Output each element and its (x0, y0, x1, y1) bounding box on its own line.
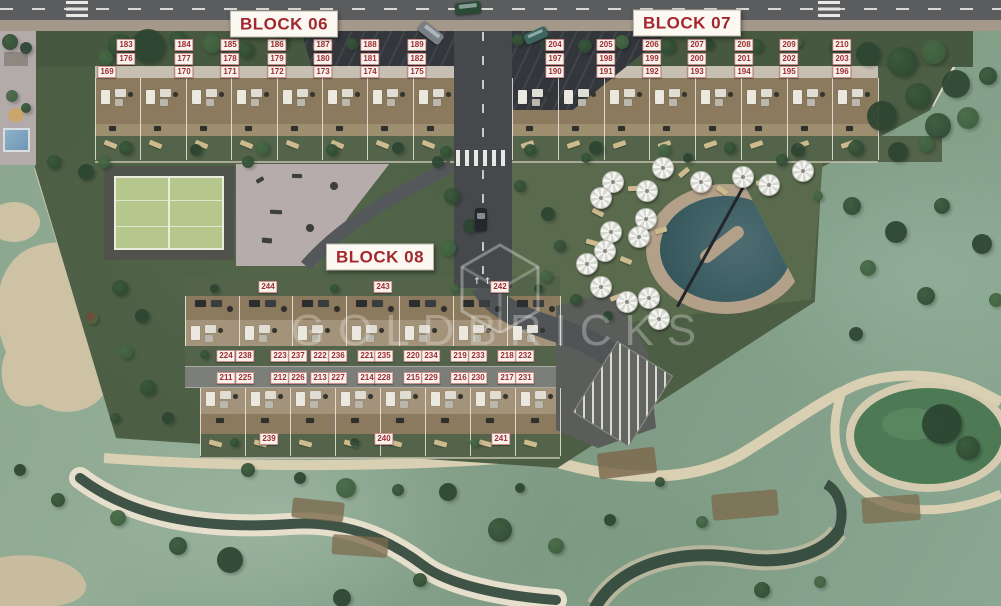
furniture (191, 326, 200, 340)
unit-label: 201 (734, 53, 753, 65)
furniture (433, 99, 441, 106)
unit-label: 210 (832, 39, 851, 51)
unit-label: 180 (313, 53, 332, 65)
tree-icon (294, 472, 306, 484)
tree-icon (86, 312, 98, 324)
furniture (310, 92, 315, 97)
patio-seat (441, 418, 449, 423)
unit-label: 178 (220, 53, 239, 65)
furniture (160, 89, 171, 97)
furniture (532, 89, 543, 97)
furniture (355, 401, 363, 408)
tree-icon (326, 144, 338, 156)
tree-icon (957, 107, 979, 129)
unit-label: 207 (687, 39, 706, 51)
tree-icon (885, 221, 907, 243)
furniture (535, 391, 546, 399)
tree-icon (570, 294, 582, 306)
furniture (160, 99, 168, 106)
tree-icon (972, 234, 992, 254)
furniture (669, 89, 680, 97)
furniture (328, 90, 337, 104)
unit-label: 231 (515, 372, 534, 384)
unit-divider (515, 388, 516, 456)
furniture (219, 92, 224, 97)
furniture (548, 394, 553, 399)
parasol-icon (652, 157, 674, 179)
tree-icon (135, 309, 149, 323)
tree-icon (131, 29, 165, 63)
tree-icon (956, 436, 980, 460)
tree-icon (432, 156, 444, 168)
furniture (310, 391, 321, 399)
tree-icon (470, 438, 479, 447)
patio-seat (336, 126, 343, 131)
unit-divider (140, 78, 141, 160)
tree-icon (860, 260, 876, 276)
unit-label: 223 (270, 350, 289, 362)
unit-label: 198 (596, 53, 615, 65)
tree-icon (814, 576, 826, 588)
tree-icon (589, 141, 603, 155)
unit-label: 222 (310, 350, 329, 362)
gym-equipment-icon (262, 238, 272, 244)
tree-icon (439, 483, 457, 501)
furniture (220, 401, 228, 408)
tree-icon (791, 143, 805, 157)
patio-seat (154, 126, 161, 131)
furniture (206, 99, 214, 106)
unit-divider (512, 78, 513, 160)
furniture (259, 335, 267, 342)
furniture (355, 391, 366, 399)
furniture (669, 99, 677, 106)
furniture (578, 99, 586, 106)
furniture (386, 392, 395, 406)
furniture (433, 89, 444, 97)
tree-icon (112, 280, 128, 296)
parasol-icon (594, 240, 616, 262)
tree-icon (849, 327, 863, 341)
unit-divider (245, 388, 246, 456)
unit-label: 242 (490, 281, 509, 293)
tree-icon (238, 42, 254, 58)
block-07-label: BLOCK 07 (633, 10, 741, 37)
furniture (218, 328, 223, 333)
unit-label: 243 (373, 281, 392, 293)
tree-icon (541, 207, 555, 221)
patio-seat (526, 126, 533, 131)
tree-icon (888, 142, 908, 162)
furniture (852, 89, 863, 97)
furniture (342, 89, 353, 97)
unit-divider (787, 78, 788, 160)
tree-icon (856, 42, 880, 66)
tree-icon (98, 156, 110, 168)
road-center-line (0, 8, 1001, 10)
tree-icon (512, 34, 524, 46)
unit-label: 199 (642, 53, 661, 65)
tree-icon (922, 40, 946, 64)
patio-seat (306, 418, 314, 423)
unit-label: 215 (403, 372, 422, 384)
furniture (445, 401, 453, 408)
unit-label: 234 (421, 350, 440, 362)
unit-label: 240 (374, 433, 393, 445)
patio-seat (291, 126, 298, 131)
furniture (490, 401, 498, 408)
patio-seat (109, 126, 116, 131)
furniture (521, 392, 530, 406)
unit-divider (335, 388, 336, 456)
tree-icon (346, 38, 358, 50)
tree-icon (615, 35, 629, 49)
unit-label: 216 (450, 372, 469, 384)
unit-label: 192 (642, 66, 661, 78)
furniture (278, 394, 283, 399)
unit-label: 169 (97, 66, 116, 78)
site-plan: ↑ ↑ GOLDBRICKS BLOCK 06 BLOCK 07 BLOCK 0… (0, 0, 1001, 606)
unit-divider (186, 78, 187, 160)
parasol-icon (732, 166, 754, 188)
unit-divider (200, 388, 201, 456)
tree-icon (210, 284, 219, 293)
parked-car (249, 300, 260, 307)
top-road (0, 0, 1001, 20)
tree-icon (918, 136, 934, 152)
tree-icon (110, 413, 120, 423)
unit-label: 177 (174, 53, 193, 65)
tree-icon (21, 103, 31, 113)
unit-divider (95, 78, 96, 160)
furniture (807, 89, 818, 97)
parasol-icon (590, 187, 612, 209)
furniture (245, 326, 254, 340)
patio-seat (572, 126, 579, 131)
tree-icon (548, 538, 564, 554)
unit-label: 213 (310, 372, 329, 384)
unit-divider (322, 78, 323, 160)
watermark-text: GOLDBRICKS (291, 309, 710, 353)
furniture (578, 89, 589, 97)
furniture (342, 99, 350, 106)
unit-divider (367, 78, 368, 160)
unit-divider (695, 78, 696, 160)
tree-icon (581, 153, 591, 163)
unit-label: 188 (360, 39, 379, 51)
tree-icon (658, 144, 670, 156)
unit-label: 184 (174, 39, 193, 51)
unit-divider (832, 78, 833, 160)
tree-icon (350, 438, 359, 447)
furniture (655, 90, 664, 104)
patio-seat (486, 418, 494, 423)
unit-label: 172 (267, 66, 286, 78)
tree-icon (190, 144, 202, 156)
parasol-icon (690, 171, 712, 193)
unit-label: 212 (270, 372, 289, 384)
tree-icon (162, 412, 174, 424)
furniture (715, 89, 726, 97)
patio-seat (755, 126, 762, 131)
tree-icon (99, 51, 113, 65)
tree-icon (242, 156, 254, 168)
tree-icon (515, 483, 525, 493)
unit-label: 174 (360, 66, 379, 78)
unit-label: 232 (515, 350, 534, 362)
tree-icon (119, 345, 133, 359)
tree-icon (989, 293, 1001, 307)
tree-icon (867, 101, 897, 131)
parasol-icon (636, 180, 658, 202)
unit-label: 229 (421, 372, 440, 384)
unit-label: 197 (545, 53, 564, 65)
tree-icon (336, 478, 356, 498)
parasol-icon (628, 226, 650, 248)
furniture (715, 99, 723, 106)
furniture (341, 392, 350, 406)
furniture (400, 391, 411, 399)
block-08-label: BLOCK 08 (326, 244, 434, 271)
patio-seat (245, 126, 252, 131)
furniture (761, 99, 769, 106)
unit-label: 193 (687, 66, 706, 78)
tree-icon (14, 464, 26, 476)
furniture (400, 401, 408, 408)
car-windshield (477, 213, 485, 219)
patio-seat (216, 418, 224, 423)
furniture (387, 99, 395, 106)
patio-seat (427, 126, 434, 131)
patio-seat (801, 126, 808, 131)
tree-icon (444, 188, 460, 204)
tree-icon (392, 142, 404, 154)
furniture (445, 391, 456, 399)
unit-label: 191 (596, 66, 615, 78)
furniture (283, 90, 292, 104)
patio-seat (381, 126, 388, 131)
unit-label: 176 (116, 53, 135, 65)
tree-icon (440, 240, 456, 256)
tree-icon (6, 90, 18, 102)
furniture (233, 394, 238, 399)
furniture (747, 90, 756, 104)
unit-label: 233 (468, 350, 487, 362)
patio-seat (396, 418, 404, 423)
unit-label: 205 (596, 39, 615, 51)
parasol-icon (576, 253, 598, 275)
furniture (774, 92, 779, 97)
furniture (761, 89, 772, 97)
unit-label: 219 (450, 350, 469, 362)
furniture (251, 89, 262, 97)
tree-icon (776, 154, 788, 166)
tree-icon (333, 589, 351, 606)
tree-icon (942, 70, 970, 98)
unit-label: 244 (258, 281, 277, 293)
tree-icon (217, 547, 243, 573)
tree-icon (604, 514, 616, 526)
furniture (503, 394, 508, 399)
furniture (192, 90, 201, 104)
road-crosswalk (456, 150, 510, 166)
crosswalk (818, 1, 840, 19)
unit-divider (558, 78, 559, 160)
furniture (259, 325, 270, 333)
unit-label: 217 (497, 372, 516, 384)
furniture (476, 392, 485, 406)
furniture (446, 92, 451, 97)
furniture (535, 401, 543, 408)
tree-icon (413, 573, 427, 587)
furniture (297, 89, 308, 97)
furniture (296, 392, 305, 406)
tree-icon (78, 164, 94, 180)
gym-equipment-icon (292, 174, 302, 178)
unit-divider (425, 388, 426, 456)
unit-label: 203 (832, 53, 851, 65)
tree-icon (655, 477, 665, 487)
unit-label: 218 (497, 350, 516, 362)
furniture (545, 92, 550, 97)
furniture (237, 90, 246, 104)
tree-icon (20, 42, 32, 54)
furniture (591, 92, 596, 97)
unit-label: 239 (259, 433, 278, 445)
tree-icon (905, 83, 931, 109)
tree-icon (110, 510, 126, 526)
unit-divider (649, 78, 650, 160)
furniture (205, 335, 213, 342)
parked-car (265, 300, 276, 307)
tree-icon (230, 438, 239, 447)
unit-label: 225 (235, 372, 254, 384)
furniture (793, 90, 802, 104)
unit-label: 237 (288, 350, 307, 362)
furniture (624, 89, 635, 97)
tree-icon (578, 39, 592, 53)
unit-label: 200 (687, 53, 706, 65)
tree-icon (925, 113, 951, 139)
furniture (355, 92, 360, 97)
furniture (265, 401, 273, 408)
unit-label: 226 (288, 372, 307, 384)
tree-icon (119, 141, 133, 155)
furniture (564, 90, 573, 104)
tree-icon (696, 516, 708, 528)
furniture (323, 394, 328, 399)
tree-icon (392, 484, 404, 496)
tree-icon (754, 582, 770, 598)
crosswalk (66, 1, 88, 19)
road-center-line (482, 32, 484, 148)
unit-label: 230 (468, 372, 487, 384)
furniture (807, 99, 815, 106)
patio-seat (200, 126, 207, 131)
unit-label: 195 (779, 66, 798, 78)
unit-label: 185 (220, 39, 239, 51)
furniture (610, 90, 619, 104)
tree-icon (200, 350, 209, 359)
unit-label: 236 (328, 350, 347, 362)
unit-label: 179 (267, 53, 286, 65)
tree-icon (488, 518, 512, 542)
tree-icon (922, 404, 962, 444)
tree-icon (51, 493, 65, 507)
tree-icon (887, 47, 917, 77)
unit-label: 238 (235, 350, 254, 362)
furniture (413, 394, 418, 399)
unit-label: 202 (779, 53, 798, 65)
unit-divider (277, 78, 278, 160)
patio-seat (531, 418, 539, 423)
gym-equipment-icon (270, 210, 282, 215)
patio-table (281, 306, 287, 312)
furniture (387, 89, 398, 97)
furniture (728, 92, 733, 97)
parked-car (211, 300, 222, 307)
tree-icon (524, 144, 536, 156)
unit-label: 228 (374, 372, 393, 384)
furniture (101, 90, 110, 104)
block-06-label: BLOCK 06 (230, 11, 338, 38)
unit-label: 194 (734, 66, 753, 78)
furniture (431, 392, 440, 406)
unit-label: 206 (642, 39, 661, 51)
tree-icon (47, 155, 61, 169)
tree-icon (660, 38, 676, 54)
patio-table (227, 306, 233, 312)
tree-icon (203, 35, 221, 53)
tree-icon (683, 153, 693, 163)
furniture (205, 325, 216, 333)
tree-icon (979, 67, 997, 85)
unit-label: 204 (545, 39, 564, 51)
furniture (265, 391, 276, 399)
unit-label: 220 (403, 350, 422, 362)
unit-label: 190 (545, 66, 564, 78)
furniture (820, 92, 825, 97)
patio-seat (846, 126, 853, 131)
furniture (251, 99, 259, 106)
furniture (310, 401, 318, 408)
patio-seat (261, 418, 269, 423)
unit-divider (380, 388, 381, 456)
furniture (220, 391, 231, 399)
furniture (419, 90, 428, 104)
parasol-icon (758, 174, 780, 196)
unit-divider (231, 78, 232, 160)
unit-label: 173 (313, 66, 332, 78)
tree-icon (934, 198, 950, 214)
unit-label: 186 (267, 39, 286, 51)
tree-icon (330, 284, 339, 293)
unit-label: 235 (374, 350, 393, 362)
furniture (458, 394, 463, 399)
tree-icon (140, 380, 156, 396)
parked-car (195, 300, 206, 307)
furniture (490, 391, 501, 399)
unit-label: 171 (220, 66, 239, 78)
unit-label: 183 (116, 39, 135, 51)
parasol-icon (792, 160, 814, 182)
furniture (146, 90, 155, 104)
furniture (272, 328, 277, 333)
unit-label: 181 (360, 53, 379, 65)
tree-icon (440, 146, 452, 158)
tree-icon (724, 142, 736, 154)
unit-divider (604, 78, 605, 160)
